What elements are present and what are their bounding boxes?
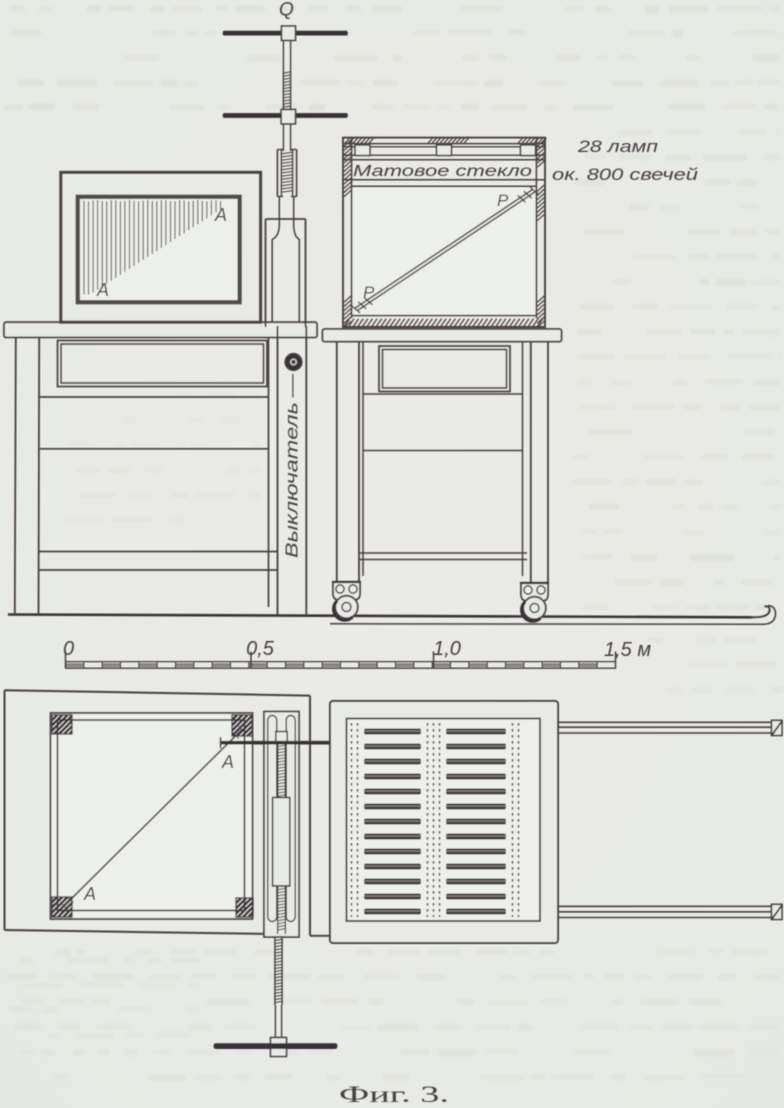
- svg-text:28 ламп: 28 ламп: [577, 137, 659, 156]
- svg-text:Выключатель —: Выключатель —: [282, 373, 302, 558]
- svg-text:0: 0: [63, 638, 74, 660]
- svg-text:0,5: 0,5: [246, 638, 275, 660]
- svg-text:1,5 м: 1,5 м: [604, 639, 651, 661]
- svg-text:A: A: [221, 752, 234, 772]
- svg-text:Фиг. 3.: Фиг. 3.: [339, 1082, 449, 1107]
- svg-text:Матовое стекло: Матовое стекло: [353, 163, 533, 180]
- svg-text:A: A: [214, 205, 227, 225]
- svg-text:P: P: [497, 191, 509, 210]
- svg-text:ок. 800 свечей: ок. 800 свечей: [552, 165, 699, 184]
- svg-text:A: A: [96, 280, 109, 300]
- svg-text:P: P: [363, 283, 375, 302]
- svg-text:A: A: [83, 884, 96, 904]
- svg-text:1,0: 1,0: [433, 638, 461, 660]
- svg-text:Q: Q: [279, 0, 294, 21]
